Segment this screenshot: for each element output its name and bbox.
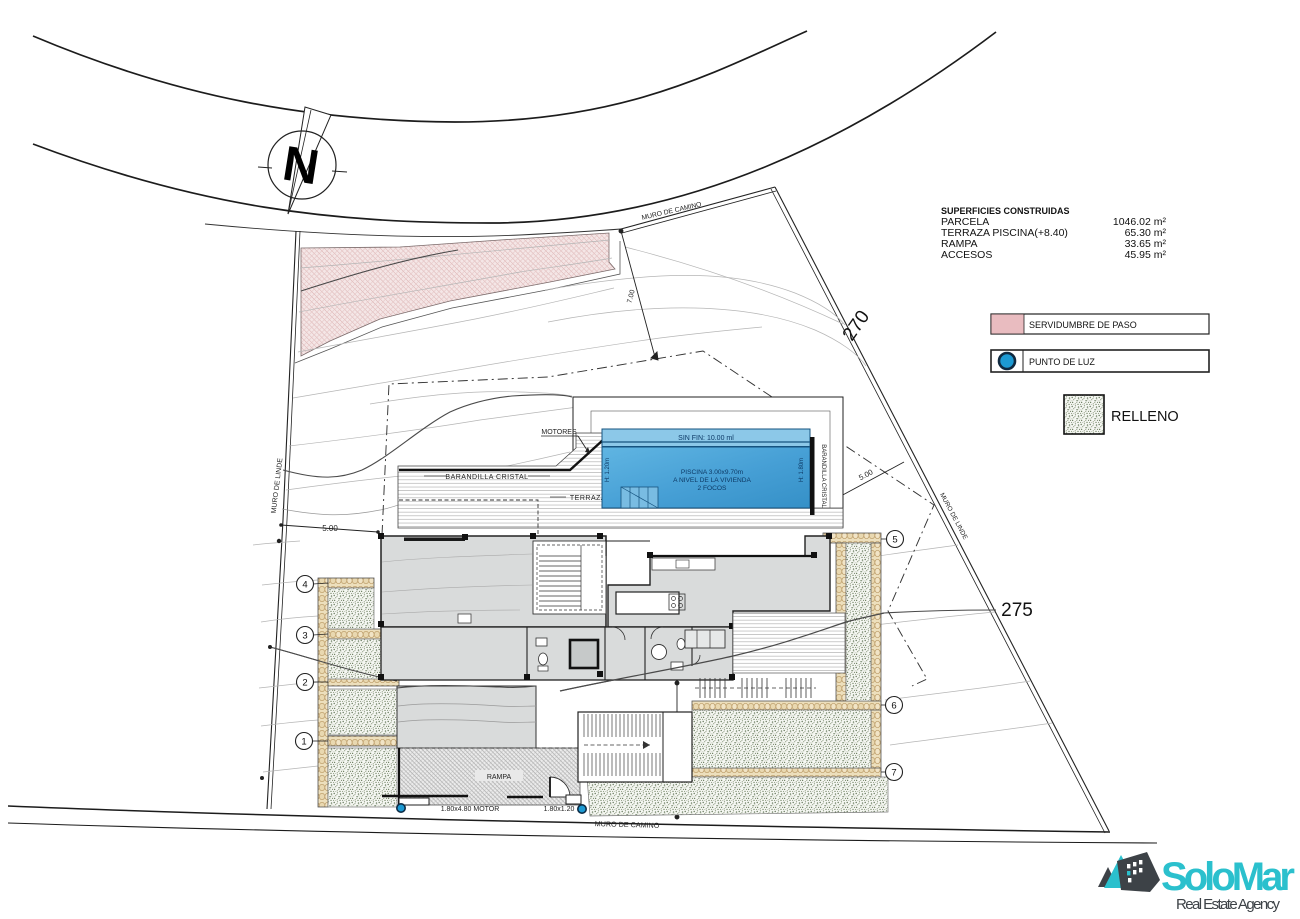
svg-text:SIN FIN: 10.00 ml: SIN FIN: 10.00 ml bbox=[678, 435, 734, 442]
svg-text:H: 1.80m: H: 1.80m bbox=[799, 458, 805, 482]
svg-text:2: 2 bbox=[302, 678, 307, 689]
svg-text:H: 1.20m: H: 1.20m bbox=[605, 458, 611, 482]
svg-text:RAMPA: RAMPA bbox=[487, 774, 512, 781]
svg-text:MURO DE CAMINO: MURO DE CAMINO bbox=[595, 819, 660, 830]
svg-text:4: 4 bbox=[302, 580, 307, 591]
svg-text:1: 1 bbox=[301, 737, 306, 748]
svg-text:6: 6 bbox=[891, 701, 896, 712]
svg-text:45.95 m²: 45.95 m² bbox=[1125, 249, 1167, 261]
svg-text:RELLENO: RELLENO bbox=[1111, 409, 1179, 425]
svg-text:2 FOCOS: 2 FOCOS bbox=[698, 485, 728, 492]
svg-text:ACCESOS: ACCESOS bbox=[941, 249, 992, 261]
svg-text:1.80x4.80 MOTOR: 1.80x4.80 MOTOR bbox=[441, 806, 500, 813]
svg-text:BARANDILLA CRISTAL: BARANDILLA CRISTAL bbox=[820, 444, 826, 508]
svg-text:TERRAZA: TERRAZA bbox=[570, 495, 606, 502]
svg-text:5.00: 5.00 bbox=[322, 524, 338, 533]
svg-text:BARANDILLA CRISTAL: BARANDILLA CRISTAL bbox=[445, 474, 528, 481]
svg-text:PISCINA 3.00x9.70m: PISCINA 3.00x9.70m bbox=[681, 469, 744, 476]
svg-text:SoloMar: SoloMar bbox=[1161, 855, 1294, 899]
svg-text:3: 3 bbox=[302, 631, 307, 642]
svg-text:7: 7 bbox=[891, 768, 896, 779]
svg-text:SUPERFICIES CONSTRUIDAS: SUPERFICIES CONSTRUIDAS bbox=[941, 206, 1070, 216]
svg-text:A NIVEL DE LA VIVIENDA: A NIVEL DE LA VIVIENDA bbox=[673, 477, 751, 484]
svg-text:275: 275 bbox=[1001, 600, 1033, 621]
svg-text:Real Estate Agency: Real Estate Agency bbox=[1176, 896, 1281, 913]
svg-text:SERVIDUMBRE DE PASO: SERVIDUMBRE DE PASO bbox=[1029, 320, 1137, 330]
svg-text:MOTORES: MOTORES bbox=[541, 429, 577, 436]
svg-text:5: 5 bbox=[892, 535, 897, 546]
svg-text:PUNTO DE LUZ: PUNTO DE LUZ bbox=[1029, 357, 1095, 367]
svg-text:1.80x1.20: 1.80x1.20 bbox=[544, 806, 575, 813]
